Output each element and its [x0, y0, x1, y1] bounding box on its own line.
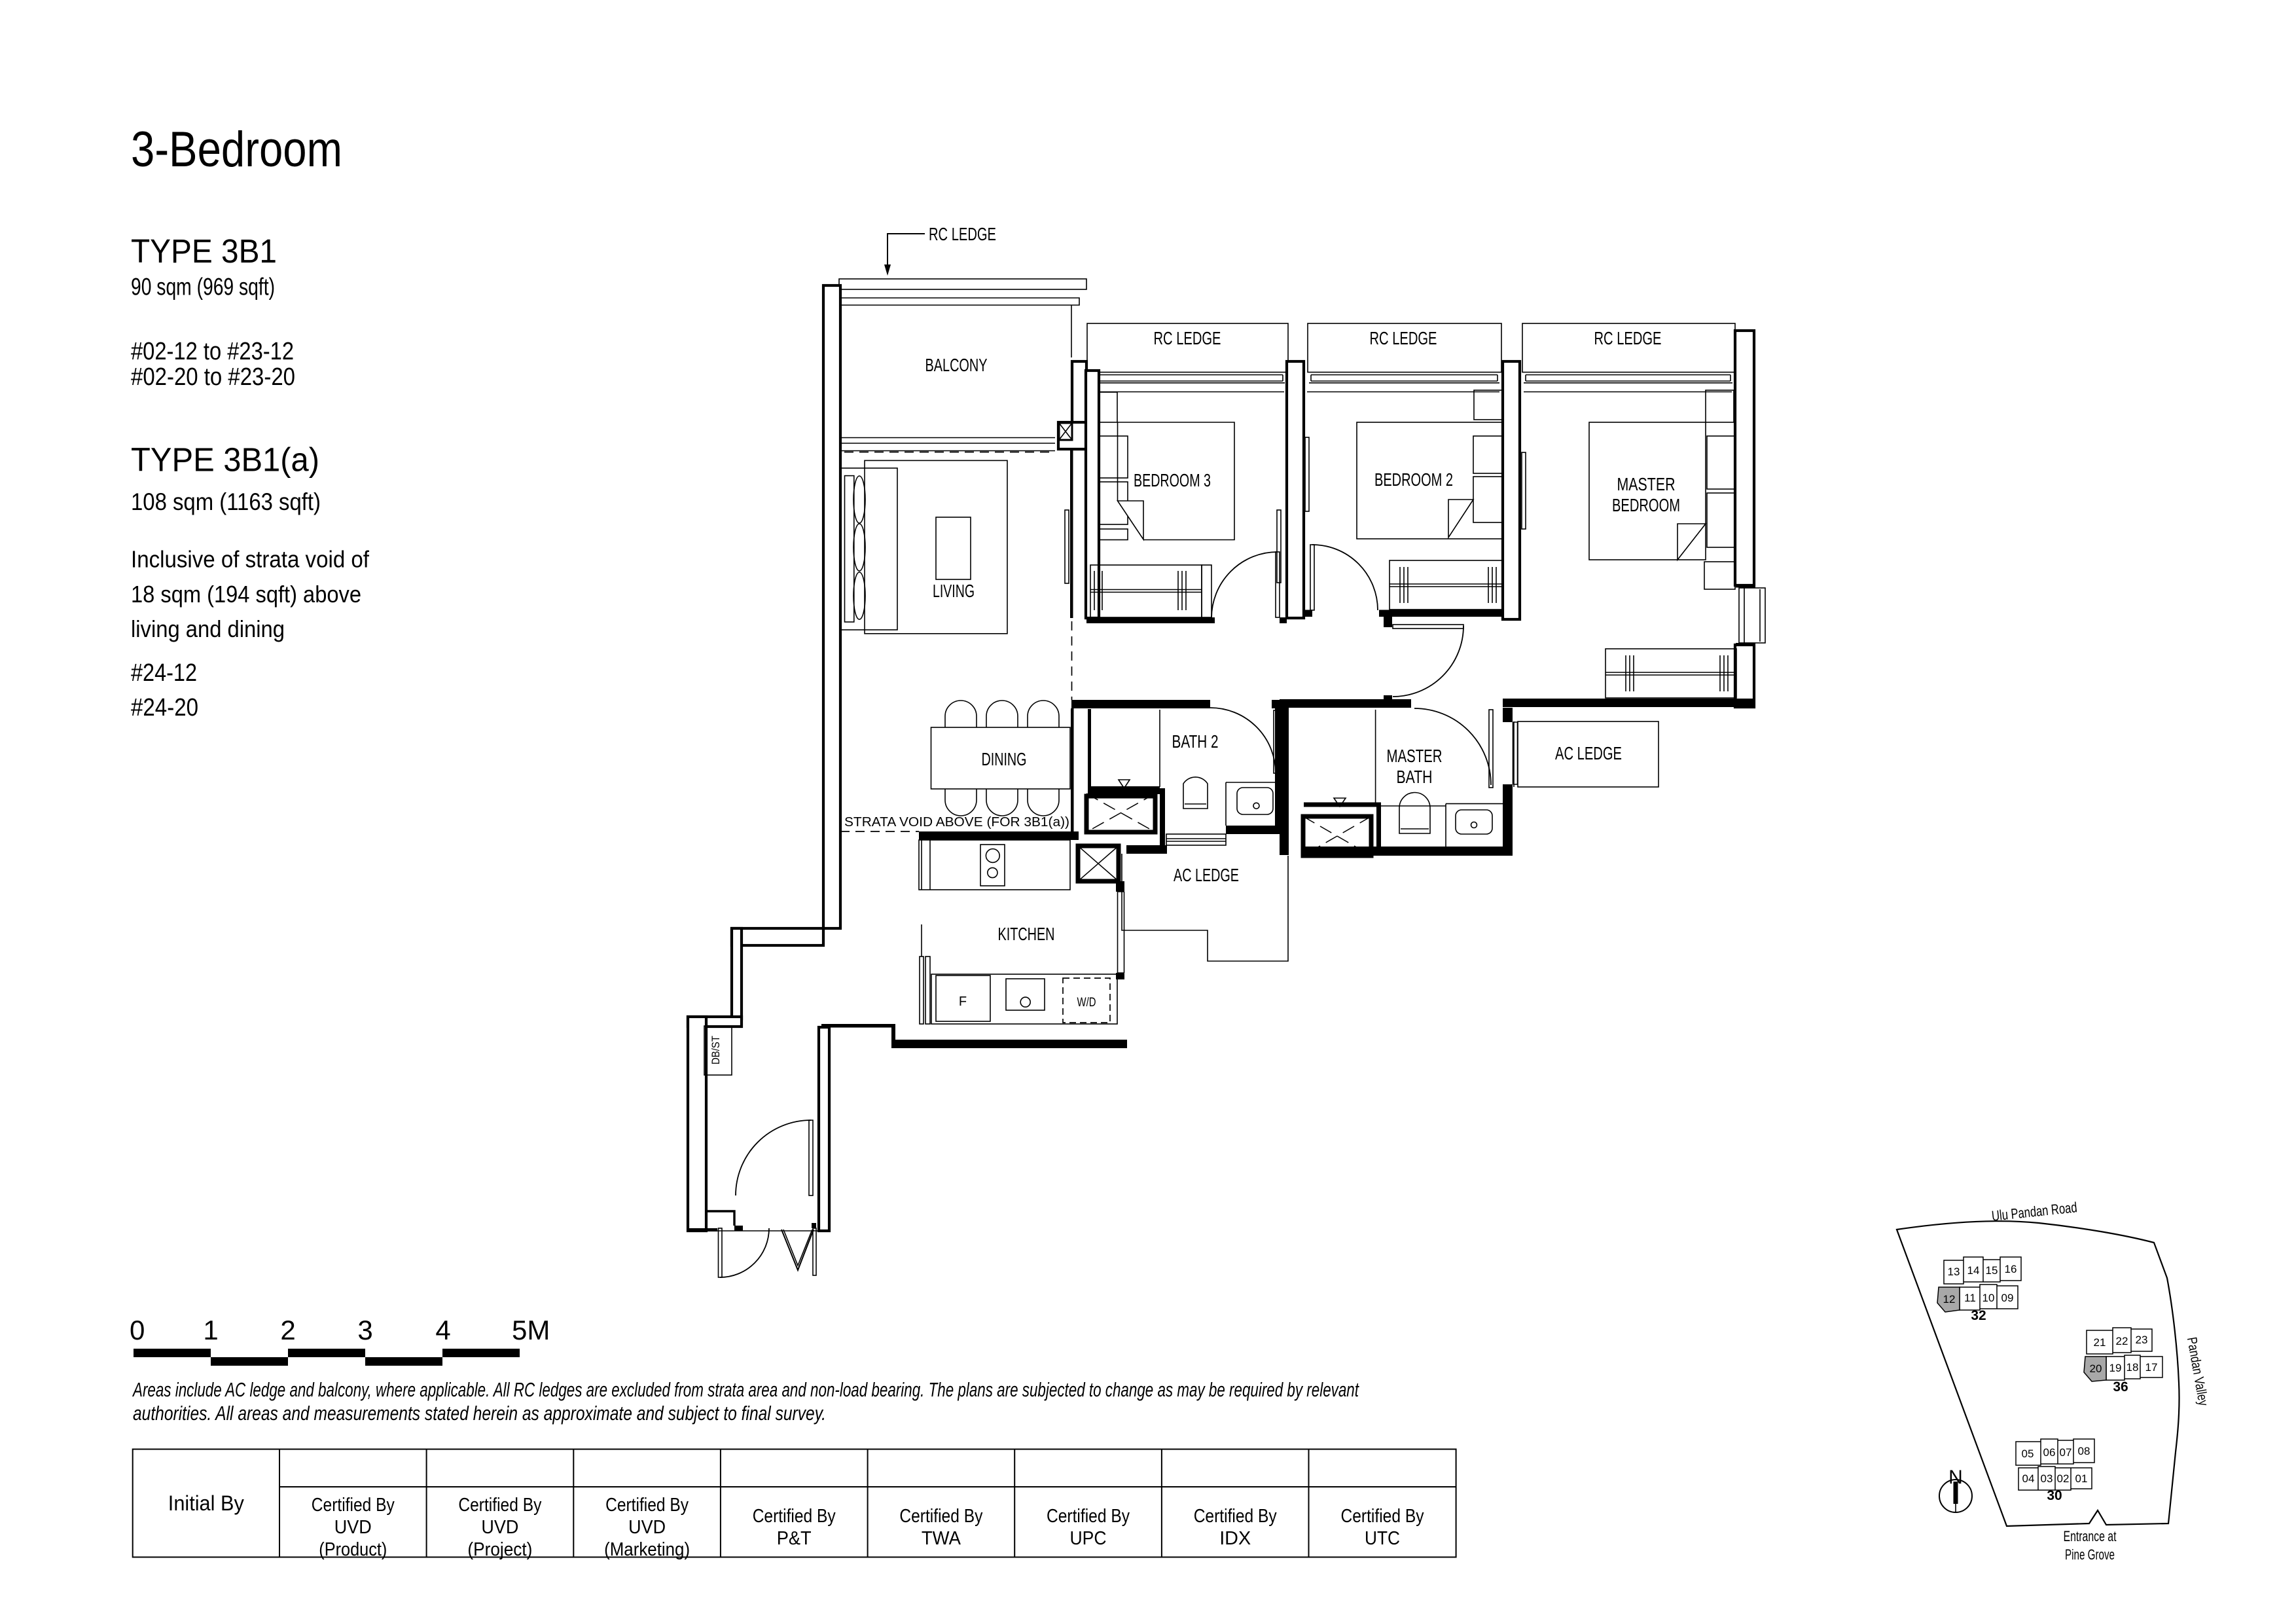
svg-text:10: 10 — [1982, 1292, 1995, 1304]
svg-text:5M: 5M — [512, 1315, 550, 1345]
svg-text:19: 19 — [2109, 1362, 2122, 1374]
svg-text:STRATA VOID ABOVE (FOR 3B1(a)): STRATA VOID ABOVE (FOR 3B1(a)) — [844, 815, 1069, 830]
svg-text:90 sqm (969 sqft): 90 sqm (969 sqft) — [131, 274, 275, 301]
svg-text:06: 06 — [2043, 1446, 2056, 1459]
svg-text:#02-20 to #23-20: #02-20 to #23-20 — [131, 363, 295, 391]
svg-text:IDX: IDX — [1219, 1528, 1251, 1549]
svg-text:living and dining: living and dining — [131, 615, 285, 642]
svg-text:18: 18 — [2126, 1361, 2139, 1374]
svg-text:0: 0 — [130, 1315, 145, 1345]
svg-text:AC LEDGE: AC LEDGE — [1174, 865, 1239, 885]
svg-text:22: 22 — [2116, 1335, 2128, 1347]
svg-text:RC LEDGE: RC LEDGE — [1370, 328, 1437, 348]
svg-text:RC LEDGE: RC LEDGE — [1594, 328, 1662, 348]
svg-text:Certified By: Certified By — [1194, 1506, 1277, 1527]
svg-text:05: 05 — [2022, 1448, 2034, 1460]
svg-text:02: 02 — [2057, 1472, 2070, 1485]
svg-text:108 sqm (1163 sqft): 108 sqm (1163 sqft) — [131, 488, 321, 515]
svg-text:DINING: DINING — [982, 749, 1027, 769]
svg-text:#24-20: #24-20 — [131, 694, 198, 721]
svg-text:13: 13 — [1948, 1266, 1960, 1278]
svg-text:20: 20 — [2090, 1362, 2102, 1375]
svg-text:RC LEDGE: RC LEDGE — [929, 224, 996, 244]
svg-text:Certified By: Certified By — [1341, 1506, 1424, 1527]
svg-text:authorities. All areas and mea: authorities. All areas and measurements … — [133, 1402, 826, 1425]
svg-text:BEDROOM: BEDROOM — [1612, 495, 1680, 515]
svg-text:21: 21 — [2094, 1336, 2106, 1349]
svg-text:01: 01 — [2075, 1472, 2088, 1485]
svg-text:3: 3 — [357, 1315, 372, 1345]
svg-text:14: 14 — [1967, 1264, 1980, 1277]
svg-text:BEDROOM 2: BEDROOM 2 — [1374, 469, 1453, 490]
svg-text:TWA: TWA — [922, 1528, 961, 1549]
svg-text:BALCONY: BALCONY — [925, 355, 988, 375]
svg-text:BATH 2: BATH 2 — [1172, 731, 1219, 752]
svg-text:(Product): (Product) — [319, 1539, 387, 1560]
svg-text:F: F — [959, 994, 967, 1009]
svg-text:LIVING: LIVING — [933, 581, 975, 601]
svg-text:Certified By: Certified By — [458, 1495, 541, 1516]
svg-text:#02-12 to #23-12: #02-12 to #23-12 — [131, 338, 294, 365]
svg-text:1: 1 — [203, 1315, 218, 1345]
svg-text:09: 09 — [2001, 1292, 2014, 1304]
svg-text:Pine Grove: Pine Grove — [2065, 1546, 2115, 1563]
svg-text:12: 12 — [1943, 1293, 1956, 1305]
svg-text:Inclusive of strata void of: Inclusive of strata void of — [131, 546, 370, 573]
svg-text:UPC: UPC — [1070, 1528, 1107, 1549]
svg-text:(Project): (Project) — [467, 1539, 532, 1560]
svg-text:15: 15 — [1986, 1264, 1998, 1277]
svg-text:3-Bedroom: 3-Bedroom — [131, 122, 342, 177]
svg-text:MASTER: MASTER — [1617, 474, 1676, 494]
svg-text:Initial By: Initial By — [168, 1491, 244, 1515]
svg-text:30: 30 — [2047, 1488, 2062, 1503]
svg-text:UTC: UTC — [1365, 1528, 1400, 1549]
svg-text:UVD: UVD — [481, 1517, 518, 1538]
svg-text:Entrance at: Entrance at — [2064, 1528, 2117, 1544]
svg-text:KITCHEN: KITCHEN — [998, 924, 1055, 944]
svg-text:03: 03 — [2041, 1472, 2053, 1485]
svg-text:#24-12: #24-12 — [131, 659, 197, 687]
svg-text:18 sqm (194 sqft) above: 18 sqm (194 sqft) above — [131, 581, 361, 608]
svg-text:Areas include AC ledge and bal: Areas include AC ledge and balcony, wher… — [132, 1378, 1359, 1401]
svg-text:RC LEDGE: RC LEDGE — [1154, 328, 1221, 348]
svg-text:AC LEDGE: AC LEDGE — [1555, 743, 1622, 763]
svg-text:23: 23 — [2136, 1334, 2148, 1346]
svg-text:2: 2 — [280, 1315, 295, 1345]
svg-text:TYPE 3B1: TYPE 3B1 — [131, 232, 277, 270]
svg-text:4: 4 — [435, 1315, 450, 1345]
svg-text:32: 32 — [1971, 1308, 1986, 1323]
svg-text:BEDROOM 3: BEDROOM 3 — [1134, 470, 1211, 490]
svg-text:11: 11 — [1964, 1292, 1976, 1304]
svg-text:16: 16 — [2005, 1263, 2017, 1275]
svg-text:BATH: BATH — [1397, 767, 1433, 787]
svg-text:UVD: UVD — [334, 1517, 372, 1538]
svg-text:MASTER: MASTER — [1387, 746, 1443, 766]
svg-text:Certified By: Certified By — [753, 1506, 836, 1527]
svg-text:W/D: W/D — [1077, 996, 1096, 1010]
svg-text:Certified By: Certified By — [312, 1495, 395, 1516]
svg-text:P&T: P&T — [777, 1528, 812, 1549]
svg-text:17: 17 — [2145, 1361, 2158, 1374]
svg-text:Certified By: Certified By — [899, 1506, 982, 1527]
svg-text:08: 08 — [2078, 1445, 2090, 1457]
svg-text:DB/ST: DB/ST — [709, 1036, 722, 1065]
svg-text:Certified By: Certified By — [1047, 1506, 1130, 1527]
svg-text:(Marketing): (Marketing) — [604, 1539, 690, 1560]
svg-text:Certified By: Certified By — [605, 1495, 689, 1516]
svg-text:TYPE 3B1(a): TYPE 3B1(a) — [131, 441, 319, 479]
svg-text:07: 07 — [2060, 1446, 2072, 1459]
svg-text:04: 04 — [2022, 1472, 2035, 1485]
svg-text:UVD: UVD — [628, 1517, 666, 1538]
svg-text:36: 36 — [2113, 1379, 2128, 1395]
